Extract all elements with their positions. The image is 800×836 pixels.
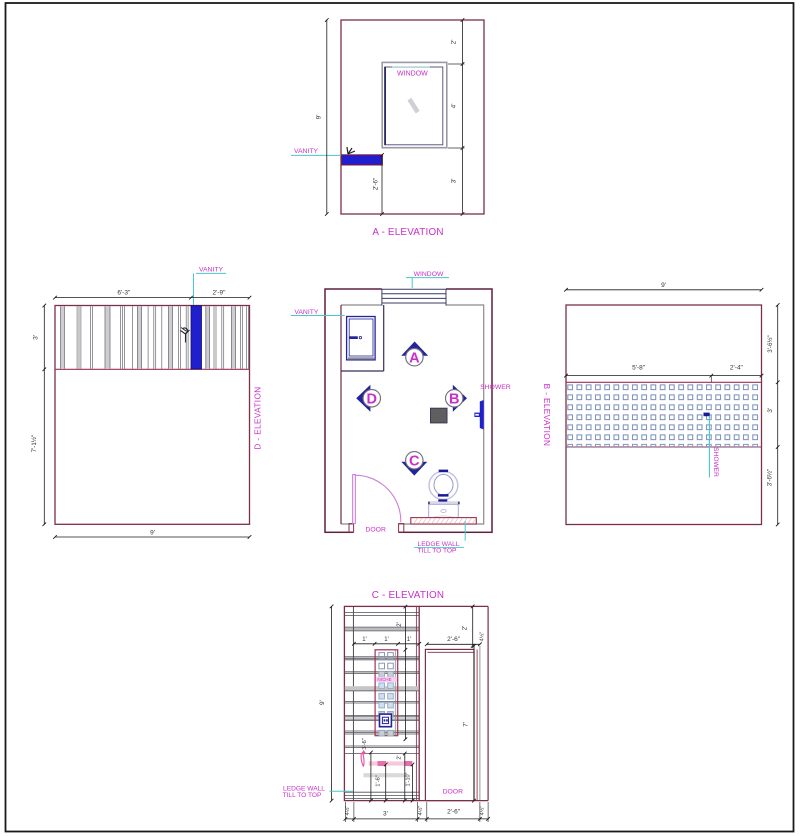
svg-text:4½": 4½"	[417, 806, 424, 816]
svg-text:2'-4": 2'-4"	[730, 364, 744, 371]
svg-text:DOOR: DOOR	[365, 526, 385, 533]
svg-text:WINDOW: WINDOW	[414, 271, 444, 278]
svg-text:6'-3": 6'-3"	[117, 290, 131, 297]
svg-text:SHOWER: SHOWER	[480, 384, 511, 391]
svg-text:A: A	[409, 350, 420, 366]
svg-text:2'-9": 2'-9"	[213, 290, 227, 297]
svg-text:C - ELEVATION: C - ELEVATION	[372, 590, 444, 601]
svg-text:2'-6": 2'-6"	[447, 808, 461, 815]
svg-text:4½": 4½"	[344, 806, 351, 816]
svg-text:2': 2'	[451, 40, 458, 45]
svg-text:D - ELEVATION: D - ELEVATION	[254, 386, 263, 449]
svg-text:9': 9'	[661, 282, 666, 289]
svg-text:B: B	[449, 392, 459, 408]
svg-text:5'-8": 5'-8"	[632, 364, 646, 371]
svg-text:2': 2'	[463, 626, 469, 630]
svg-text:SHOWER: SHOWER	[712, 447, 719, 477]
svg-text:3'-6": 3'-6"	[362, 738, 368, 750]
svg-text:3': 3'	[767, 408, 774, 413]
svg-text:C: C	[409, 454, 420, 470]
svg-text:3': 3'	[33, 335, 40, 340]
svg-text:9': 9'	[316, 115, 323, 120]
svg-text:3': 3'	[451, 179, 458, 184]
svg-text:VANITY: VANITY	[294, 148, 319, 155]
svg-text:1': 1'	[407, 637, 411, 643]
svg-text:2': 2'	[397, 755, 403, 759]
svg-text:D: D	[367, 392, 377, 408]
svg-text:1'-6": 1'-6"	[376, 775, 382, 787]
svg-text:2'-6": 2'-6"	[447, 636, 461, 643]
svg-text:3'-6½": 3'-6½"	[767, 469, 774, 486]
svg-text:B - ELEVATION: B - ELEVATION	[542, 384, 551, 447]
svg-text:3': 3'	[383, 810, 388, 817]
svg-text:9': 9'	[150, 529, 155, 536]
svg-text:2': 2'	[397, 622, 403, 626]
svg-text:4½": 4½"	[479, 632, 486, 642]
svg-text:4': 4'	[451, 104, 458, 109]
svg-text:VANITY: VANITY	[294, 309, 319, 316]
svg-text:WINDOW: WINDOW	[397, 71, 428, 78]
svg-text:7': 7'	[463, 722, 470, 727]
svg-text:TILL TO TOP: TILL TO TOP	[283, 792, 322, 799]
svg-text:NICHE: NICHE	[377, 677, 391, 682]
svg-text:2'-6": 2'-6"	[373, 178, 380, 190]
svg-text:1': 1'	[362, 637, 366, 643]
svg-text:7'-1½": 7'-1½"	[31, 435, 38, 452]
svg-text:1'-10": 1'-10"	[405, 772, 411, 786]
svg-text:A - ELEVATION: A - ELEVATION	[372, 227, 443, 238]
svg-text:DOOR: DOOR	[443, 789, 463, 796]
svg-text:3'-6½": 3'-6½"	[767, 335, 774, 352]
svg-text:TILL TO TOP: TILL TO TOP	[418, 548, 457, 555]
svg-text:9': 9'	[319, 700, 326, 705]
svg-text:1': 1'	[384, 637, 388, 643]
svg-text:VANITY: VANITY	[199, 267, 224, 274]
